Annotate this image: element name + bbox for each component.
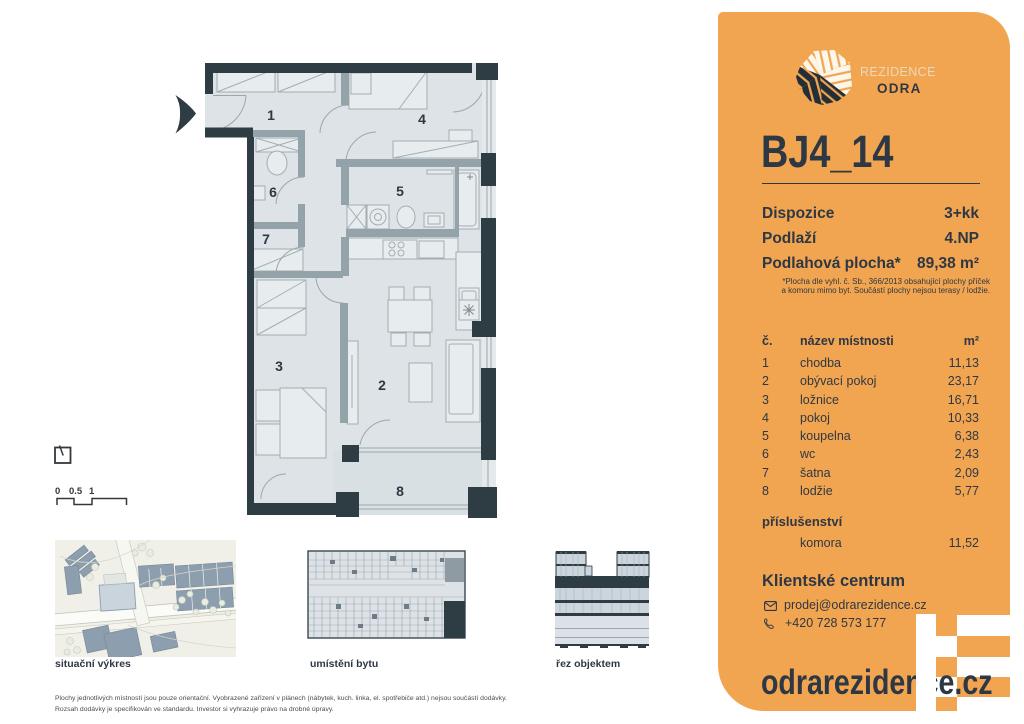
svg-text:3: 3 <box>275 358 283 374</box>
svg-text:0.5: 0.5 <box>69 486 83 497</box>
svg-text:1: 1 <box>89 486 95 497</box>
svg-text:5: 5 <box>396 183 404 199</box>
svg-text:0: 0 <box>55 486 60 497</box>
svg-text:8: 8 <box>396 483 404 499</box>
svg-text:4: 4 <box>418 111 426 127</box>
svg-text:7: 7 <box>262 231 270 247</box>
svg-text:6: 6 <box>269 184 277 200</box>
svg-text:2: 2 <box>378 377 386 393</box>
svg-text:1: 1 <box>267 107 275 123</box>
